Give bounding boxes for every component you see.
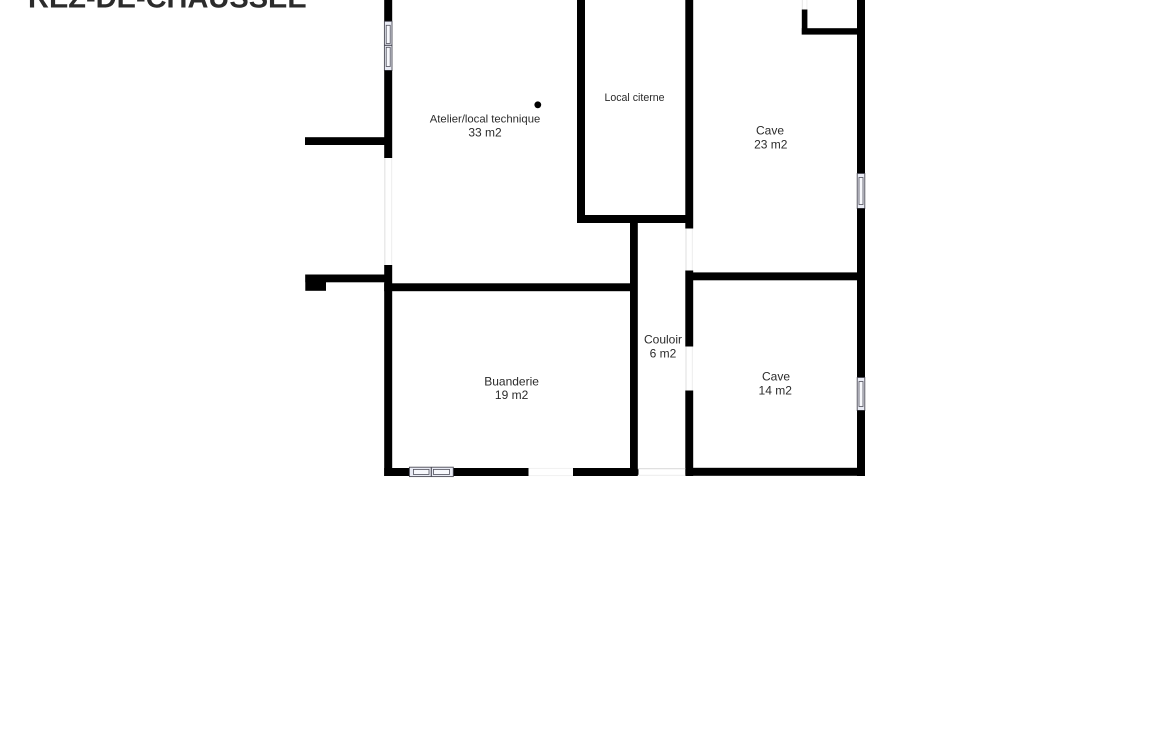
svg-text:Cave: Cave [756, 124, 784, 138]
svg-text:23 m2: 23 m2 [754, 137, 788, 151]
svg-text:REZ-DE-CHAUSSÉE: REZ-DE-CHAUSSÉE [28, 0, 307, 15]
svg-text:33 m2: 33 m2 [468, 126, 502, 140]
svg-text:Buanderie: Buanderie [484, 374, 539, 388]
svg-text:Couloir: Couloir [644, 333, 682, 347]
svg-text:19 m2: 19 m2 [495, 388, 529, 402]
svg-text:Atelier/local technique: Atelier/local technique [430, 114, 541, 126]
svg-text:6 m2: 6 m2 [650, 346, 677, 360]
svg-text:14 m2: 14 m2 [759, 383, 793, 397]
svg-text:Cave: Cave [762, 369, 790, 383]
svg-text:Local citerne: Local citerne [604, 92, 664, 104]
